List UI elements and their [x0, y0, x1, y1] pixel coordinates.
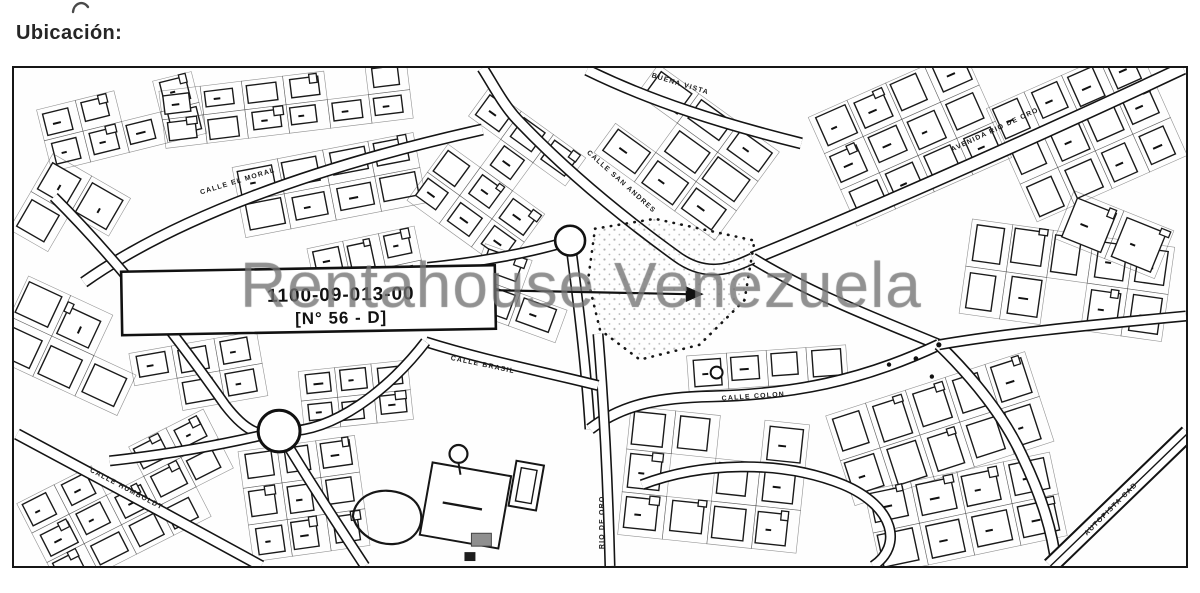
shaded-structure [471, 533, 491, 546]
roundabout-north [555, 226, 585, 256]
annex-building [509, 461, 544, 511]
location-map: 1100-09-013-00 [N° 56 - D] BUENA VISTA A… [12, 66, 1188, 568]
large-building [420, 462, 511, 548]
street-label-rio-de-oro: RIO DE ORO [599, 496, 606, 550]
cadastral-map-drawing: 1100-09-013-00 [N° 56 - D] BUENA VISTA A… [14, 68, 1186, 566]
highway-autopista [1044, 427, 1186, 566]
filled-square-mark [464, 552, 475, 561]
water-tank-circle [450, 445, 468, 463]
subject-parcel-outline [588, 219, 754, 360]
cul-de-sac-circle [711, 367, 723, 379]
pond-outline [353, 491, 421, 544]
street-label-autopista: AUTOPISTA CAB [1083, 482, 1139, 538]
parcel-code: 1100-09-013-00 [267, 283, 415, 307]
location-document-page: Ubicación: [0, 0, 1200, 593]
scan-artifact-mark [70, 0, 94, 14]
page-title: Ubicación: [16, 22, 122, 45]
parcel-number: [N° 56 - D] [295, 308, 387, 329]
roundabout-southwest [258, 410, 300, 452]
parcel-label-box: 1100-09-013-00 [N° 56 - D] [121, 265, 496, 335]
